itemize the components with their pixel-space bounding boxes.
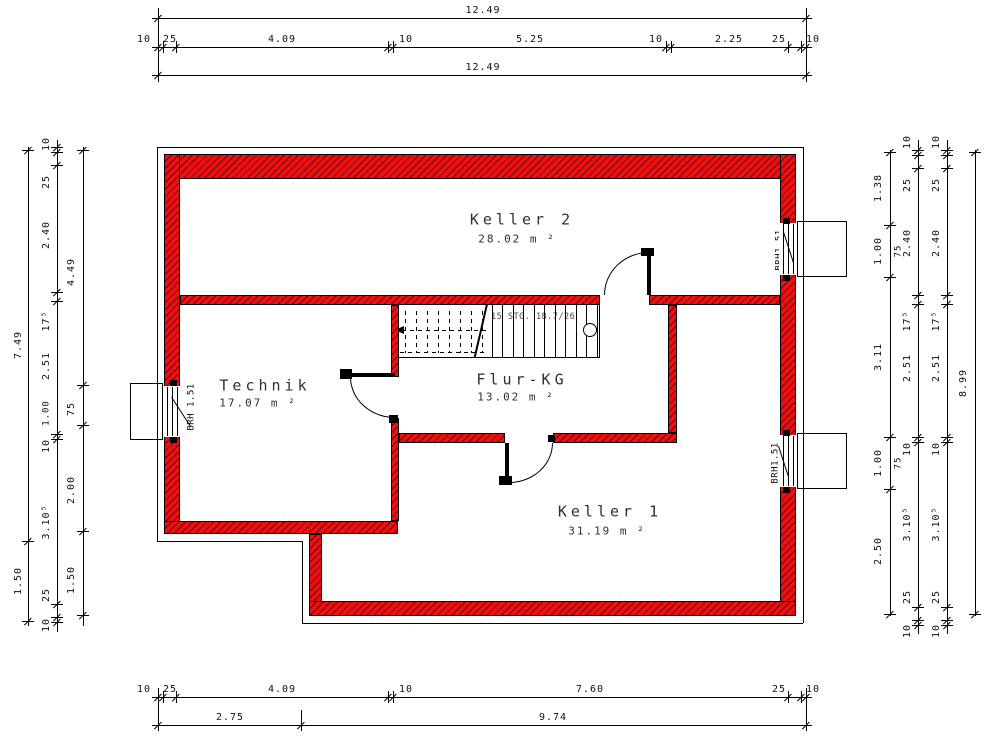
dimension-tick-stub [77,531,89,532]
dimension-tick-stub [941,155,953,156]
dimension-tick-stub [912,304,924,305]
dimension-tick-stub [77,385,89,386]
wall-segment [649,295,780,305]
dimension-tick-stub [77,425,89,426]
dim-label: 4.49 [67,258,77,286]
drawing-line [793,224,794,274]
dim-label: 2.75 [216,713,244,723]
dimension-tick-stub [51,152,63,153]
dim-label: 25 [163,35,177,45]
dimension-tick-stub [884,277,896,278]
window-sill-box [797,221,847,277]
dimension-line [975,150,976,616]
dashed-line [460,311,461,353]
wall-segment [164,154,796,179]
dashed-line [471,311,472,353]
drawing-line [492,305,493,357]
dim-label: 10 [903,135,913,149]
drawing-line [555,305,556,357]
dimension-tick-stub [884,152,896,153]
dim-label: 2.40 [42,221,52,249]
dim-label: 10 [932,135,942,149]
dimension-tick-stub [941,304,953,305]
dimension-tick-stub [941,437,953,438]
dim-label: 2.40 [932,229,942,257]
wall-segment [391,418,399,521]
rotated-line [474,304,488,358]
dim-label: 25 [42,175,52,189]
dimension-line [28,147,29,626]
dim-label: 2.51 [932,354,942,382]
drawing-line [302,541,303,623]
dim-label: 25 [42,588,52,602]
dimension-tick-stub [158,719,159,731]
dimension-tick-stub [912,620,924,621]
dimension-tick-stub [912,168,924,169]
dim-label: 9.74 [539,713,567,723]
dimension-tick-stub [941,150,953,151]
dim-label-extra: 75 [895,457,904,470]
wall-segment [164,521,398,534]
wall-segment [553,433,677,443]
dimension-tick-stub [788,41,789,53]
dimension-tick-stub [912,625,924,626]
drawing-line [399,357,600,358]
dim-label: 1.50 [14,567,24,595]
dimension-tick-stub [941,620,953,621]
dim-label: 10 [932,442,942,456]
room-name-keller2: Keller 2 [470,213,574,228]
drawing-line [502,305,503,357]
dim-label: 25 [903,178,913,192]
drawing-line [534,305,535,357]
dimension-line [947,140,948,634]
dimension-tick-stub [941,607,953,608]
dim-label: 2.40 [903,229,913,257]
room-area-keller1: 31.19 m ² [568,526,646,537]
dim-label: 8.99 [959,369,969,397]
dimension-tick-stub [912,437,924,438]
dimension-tick-stub [788,691,789,703]
drawing-line [803,147,804,623]
dimension-tick-stub [884,489,896,490]
dim-label: 3.10⁵ [932,506,942,541]
dimension-tick-stub [51,617,63,618]
door-window-detail [548,435,555,442]
wall-segment [309,601,796,616]
dimension-tick-stub [671,41,672,53]
dimension-tick-stub [806,69,807,81]
dim-label: 7.60 [576,685,604,695]
dim-label: 25 [772,685,786,695]
drawing-line [793,436,794,486]
dimension-tick-stub [806,12,807,24]
door-swing-arc [350,377,395,418]
dim-label: 10 [932,624,942,638]
dimension-tick-stub [393,691,394,703]
dimension-tick-stub [77,150,89,151]
dim-label: 3.11 [874,343,884,371]
dimension-line [152,18,812,19]
dimension-tick-stub [22,621,34,622]
dimension-tick-stub [969,152,981,153]
dimension-tick-stub [941,442,953,443]
dim-label: 25 [932,590,942,604]
dim-label: 10 [137,35,151,45]
door-window-detail [783,430,790,436]
dim-label: 25 [772,35,786,45]
drawing-line [172,387,173,436]
drawing-line [177,387,178,436]
room-area-technik: 17.07 m ² [219,398,297,409]
drawing-line [513,305,514,357]
dimension-tick-stub [77,615,89,616]
drawing-line [302,623,803,624]
dim-label: 3.10⁵ [903,506,913,541]
dimension-tick-stub [884,614,896,615]
dim-label: 10 [42,137,52,151]
dimension-tick-stub [912,295,924,296]
dim-label: 10 [903,624,913,638]
dim-label: 17⁵ [42,310,52,331]
dimension-tick-stub [22,541,34,542]
dim-label: 75 [67,402,77,416]
dim-label: 4.09 [268,685,296,695]
door-window-detail [783,275,790,281]
dimension-tick-stub [806,719,807,731]
dashed-line [449,311,450,353]
drawing-line [565,305,566,357]
dimension-tick-stub [912,150,924,151]
wall-segment [668,305,677,433]
dimension-tick-stub [51,434,63,435]
dimension-tick-stub [51,147,63,148]
dim-label: 2.00 [67,476,77,504]
dim-label: 10 [399,35,413,45]
dimension-tick-stub [158,12,159,24]
door-window-detail [783,218,790,224]
room-name-technik: Technik [219,379,310,394]
dimension-tick-stub [941,295,953,296]
dimension-line [890,150,891,616]
dashed-line [405,311,406,353]
drawing-line [576,305,577,357]
drawing-line [167,387,168,436]
wall-segment [399,433,505,443]
dim-label: 10 [42,439,52,453]
drawing-line [157,147,803,148]
dimension-tick-stub [941,625,953,626]
dim-label: 17⁵ [932,310,942,331]
dashed-line [427,311,428,353]
dim-label: 1.50 [67,566,77,594]
door-window-detail [170,380,177,386]
dim-label: 10 [137,685,151,695]
drawing-line [597,305,598,357]
dim-label: 10 [42,618,52,632]
dimension-line [152,697,812,698]
dimension-tick-stub [51,439,63,440]
dimension-tick-stub [884,437,896,438]
dimension-tick-stub [51,301,63,302]
room-name-keller1: Keller 1 [558,505,662,520]
drawing-line [544,305,545,357]
stair-newel-circle [583,323,597,337]
dim-label: 12.49 [465,63,500,73]
dim-label: 25 [163,685,177,695]
dimension-tick-stub [51,622,63,623]
dim-label: 7.49 [14,331,24,359]
dim-label: 25 [903,590,913,604]
dim-label: 10 [399,685,413,695]
dimension-tick-stub [393,41,394,53]
dim-label: 1.38 [874,174,884,202]
drawing-line [157,541,302,542]
dim-label: 17⁵ [903,310,913,331]
dim-label: 5.25 [516,35,544,45]
room-name-flur-kg: Flur-KG [476,373,567,388]
dim-label-extra: 1.00 [43,400,52,426]
dim-label: 2.25 [715,35,743,45]
dim-label: 10 [903,442,913,456]
dimension-line [57,140,58,632]
dimension-tick-stub [51,604,63,605]
dimension-tick-stub [912,155,924,156]
dashed-line [438,311,439,353]
dim-label: 25 [932,178,942,192]
wall-segment [391,305,399,377]
door-window-detail [783,487,790,493]
dimension-line [152,725,812,726]
dimension-tick-stub [22,150,34,151]
dim-label: 2.51 [42,352,52,380]
dimension-tick-stub [941,168,953,169]
dimension-tick-stub [884,225,896,226]
dim-label: 2.50 [874,537,884,565]
room-area-flur-kg: 13.02 m ² [477,392,555,403]
dimension-line [918,140,919,634]
drawing-line [599,305,600,357]
dashed-line [400,352,486,353]
drawing-line [157,147,158,541]
dimension-line [152,47,812,48]
dim-label: 2.51 [903,354,913,382]
drawing-line [523,305,524,357]
dashed-line [402,330,486,331]
dimension-tick-stub [158,69,159,81]
window-sill-box [130,383,163,440]
dim-label: 1.00 [874,237,884,265]
dim-label: 10 [806,685,820,695]
dimension-tick-stub [969,614,981,615]
dimension-tick-stub [51,165,63,166]
door-swing-arc [509,443,553,483]
room-area-keller2: 28.02 m ² [478,234,556,245]
dim-label: 12.49 [465,6,500,16]
dim-label-extra: 75 [895,245,904,258]
door-window-detail [170,437,177,443]
dimension-tick-stub [912,607,924,608]
door-swing-arc [604,252,649,295]
dim-label: 1.00 [874,449,884,477]
dimension-line [152,75,812,76]
dimension-tick-stub [51,292,63,293]
dashed-line [416,311,417,353]
dim-label: 10 [649,35,663,45]
dim-label: 3.10⁵ [42,504,52,539]
drawing-line [788,436,789,486]
wall-segment [164,154,180,534]
dimension-tick-stub [912,442,924,443]
wall-segment [180,295,600,305]
window-sill-box [797,433,847,489]
dim-label: 10 [806,35,820,45]
dimension-tick-stub [301,719,302,731]
floor-plan-canvas: Keller 2 28.02 m ² Technik 17.07 m ² Flu… [0,0,1000,749]
dim-label: 4.09 [268,35,296,45]
